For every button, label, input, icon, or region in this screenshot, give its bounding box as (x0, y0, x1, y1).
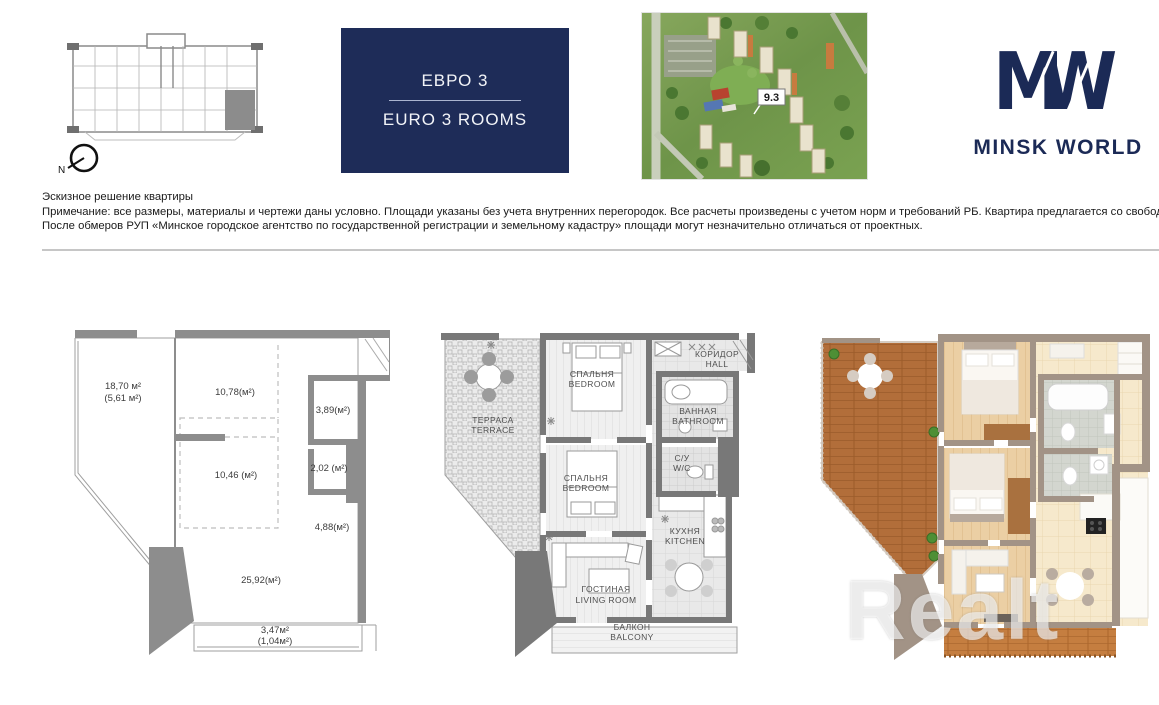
brand-block: M W MINSK WORLD (962, 36, 1154, 164)
masterplan-aerial-image: 9.3 (641, 12, 868, 180)
label-kitchen-en: KITCHEN (665, 536, 705, 546)
label-terrace-en: TERRACE (471, 425, 514, 435)
entrance-hatch (365, 338, 389, 371)
label-wc-ru: С/У (674, 453, 689, 463)
compass-icon: N (48, 138, 110, 182)
area-room-488: 4,88(м²) (315, 522, 350, 533)
area-balcony: 3,47м² (261, 625, 289, 636)
divider (42, 249, 1159, 251)
area-room-mid: 10,46 (м²) (215, 470, 257, 481)
aerial-render: 9.3 (642, 13, 867, 179)
label-living-en: LIVING ROOM (575, 595, 636, 605)
label-balcony-ru: БАЛКОН (614, 622, 651, 632)
label-bedroom1-ru: СПАЛЬНЯ (570, 369, 614, 379)
card-divider-line (389, 100, 521, 101)
building-floorplate-schematic (65, 30, 265, 145)
label-bath-en: BATHROOM (672, 416, 724, 426)
compass-north-label: N (58, 165, 65, 176)
label-bedroom2-en: BEDROOM (563, 483, 610, 493)
sheet-title: Эскизное решение квартиры (42, 190, 1159, 205)
label-bedroom1-en: BEDROOM (569, 379, 616, 389)
label-living-ru: ГОСТИНАЯ (581, 584, 630, 594)
label-hall-ru: КОРИДОР (695, 349, 739, 359)
label-hall-en: HALL (706, 359, 729, 369)
label-bedroom2-ru: СПАЛЬНЯ (564, 473, 608, 483)
area-balcony-reduced: (1,04м²) (258, 636, 293, 647)
area-terrace: 18,70 м² (105, 381, 141, 392)
note-line-2: После обмеров РУП «Минское городское аге… (42, 219, 1159, 234)
area-terrace-reduced: (5,61 м²) (104, 393, 141, 404)
render-3d-floor-plan (818, 328, 1155, 662)
label-wc-en: W/C (673, 463, 691, 473)
flat-sheet: { "header": { "euro_card": { "title_ru":… (0, 0, 1159, 705)
dimension-floor-plan: 18,70 м² (5,61 м²) 10,78(м²) 3,89(м²) 2,… (65, 325, 390, 658)
area-room-389: 3,89(м²) (316, 405, 351, 416)
note-line-1: Примечание: все размеры, материалы и чер… (42, 205, 1159, 220)
highlighted-unit (225, 90, 255, 130)
label-bath-ru: ВАННАЯ (679, 406, 717, 416)
room-label-floor-plan: ТЕРРАСА TERRACE СПАЛЬНЯ BEDROOM КОРИДОР … (437, 325, 755, 659)
label-kitchen-ru: КУХНЯ (670, 526, 700, 536)
unit-type-en: EURO 3 ROOMS (383, 110, 527, 130)
minsk-world-logo-icon: M W (995, 36, 1121, 132)
area-room-top: 10,78(м²) (215, 387, 255, 398)
notes-block: Эскизное решение квартиры Примечание: вс… (42, 190, 1159, 234)
label-terrace-ru: ТЕРРАСА (472, 415, 514, 425)
area-room-living: 25,92(м²) (241, 575, 281, 586)
brand-name: MINSK WORLD (973, 136, 1142, 160)
unit-type-card: ЕВРО 3 EURO 3 ROOMS (341, 28, 569, 173)
aerial-badge-label: 9.3 (764, 92, 779, 104)
unit-type-ru: ЕВРО 3 (421, 71, 488, 91)
label-balcony-en: BALCONY (610, 632, 653, 642)
svg-text:W: W (1039, 36, 1117, 128)
walls (75, 330, 390, 655)
area-room-202: 2,02 (м²) (310, 463, 347, 474)
